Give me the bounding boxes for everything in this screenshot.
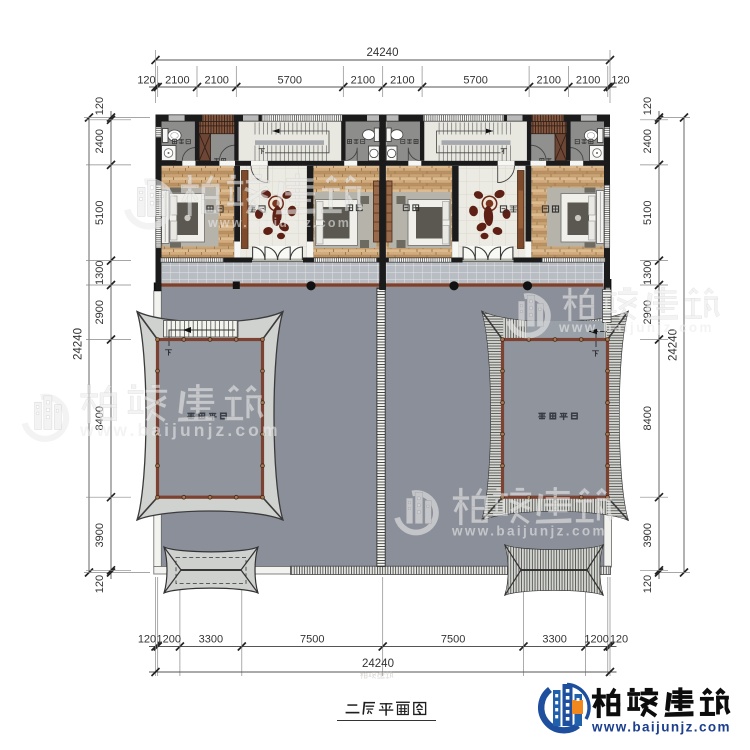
svg-text:2400: 2400 — [94, 129, 106, 153]
svg-text:120: 120 — [611, 75, 629, 87]
svg-text:120: 120 — [94, 575, 106, 593]
svg-text:1200: 1200 — [584, 634, 608, 646]
svg-text:www.baijunjz.com: www.baijunjz.com — [207, 216, 351, 230]
svg-text:3300: 3300 — [199, 634, 223, 646]
svg-text:1300: 1300 — [94, 260, 106, 284]
svg-text:2100: 2100 — [204, 75, 228, 87]
svg-text:1200: 1200 — [157, 634, 181, 646]
svg-text:3900: 3900 — [94, 523, 106, 547]
svg-text:5700: 5700 — [463, 75, 487, 87]
svg-text:2400: 2400 — [642, 129, 654, 153]
svg-text:www.baijunjz.com: www.baijunjz.com — [79, 420, 281, 440]
svg-text:120: 120 — [642, 97, 654, 115]
svg-text:24240: 24240 — [73, 328, 85, 360]
svg-text:www.baijunjz.com: www.baijunjz.com — [591, 720, 731, 735]
svg-text:2100: 2100 — [576, 75, 600, 87]
svg-text:120: 120 — [642, 575, 654, 593]
svg-text:3300: 3300 — [542, 634, 566, 646]
svg-text:2100: 2100 — [537, 75, 561, 87]
svg-text:7500: 7500 — [441, 634, 465, 646]
svg-text:24240: 24240 — [362, 658, 394, 670]
svg-text:www.baijunjz.com: www.baijunjz.com — [451, 524, 607, 539]
svg-text:5100: 5100 — [642, 200, 654, 224]
svg-text:120: 120 — [610, 634, 628, 646]
svg-text:120: 120 — [138, 634, 156, 646]
svg-text:2100: 2100 — [390, 75, 414, 87]
svg-text:www.baijunjz.com: www.baijunjz.com — [558, 320, 714, 335]
svg-text:7500: 7500 — [300, 634, 324, 646]
svg-text:120: 120 — [137, 75, 155, 87]
svg-text:24240: 24240 — [367, 47, 399, 59]
svg-text:8400: 8400 — [642, 406, 654, 430]
svg-text:120: 120 — [94, 97, 106, 115]
svg-text:2100: 2100 — [165, 75, 189, 87]
svg-text:3900: 3900 — [642, 523, 654, 547]
svg-text:1300: 1300 — [642, 260, 654, 284]
svg-text:5100: 5100 — [94, 200, 106, 224]
svg-text:2900: 2900 — [94, 300, 106, 324]
svg-text:2100: 2100 — [351, 75, 375, 87]
svg-text:5700: 5700 — [278, 75, 302, 87]
